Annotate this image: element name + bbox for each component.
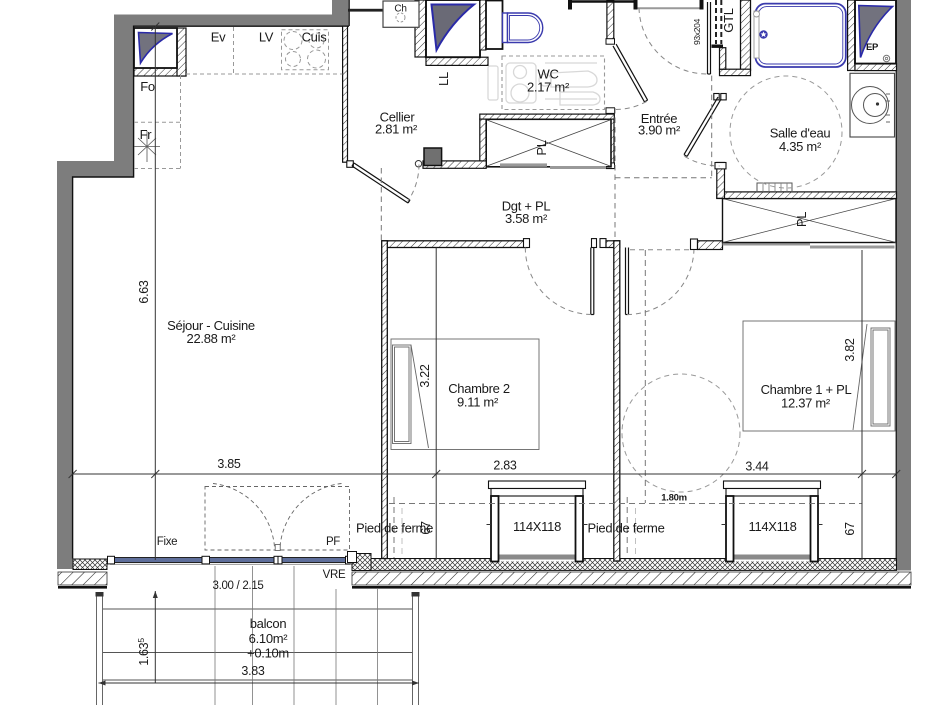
svg-text:3.58 m²: 3.58 m² xyxy=(505,211,548,226)
svg-text:6.10m²: 6.10m² xyxy=(249,631,289,646)
svg-text:3.85: 3.85 xyxy=(217,457,240,471)
svg-text:4.35 m²: 4.35 m² xyxy=(779,139,822,154)
svg-text:Ev: Ev xyxy=(211,30,226,45)
svg-text:3.82: 3.82 xyxy=(843,338,857,361)
svg-text:Pied de ferme: Pied de ferme xyxy=(356,521,433,536)
svg-text:Fo: Fo xyxy=(140,79,155,94)
svg-text:Fr: Fr xyxy=(140,127,153,142)
svg-text:93x204: 93x204 xyxy=(692,18,702,45)
svg-text:12.37 m²: 12.37 m² xyxy=(781,396,831,411)
svg-text:3.44: 3.44 xyxy=(745,460,768,474)
svg-text:GTL: GTL xyxy=(721,8,736,32)
svg-text:114X118: 114X118 xyxy=(513,519,561,534)
svg-text:2.83: 2.83 xyxy=(493,459,516,473)
svg-text:6.63: 6.63 xyxy=(137,280,151,303)
svg-text:3.90 m²: 3.90 m² xyxy=(638,123,681,138)
svg-text:Pied de ferme: Pied de ferme xyxy=(587,521,664,536)
svg-text:Ch: Ch xyxy=(394,4,406,15)
svg-text:3.83: 3.83 xyxy=(241,664,264,678)
svg-text:1.80m: 1.80m xyxy=(661,493,686,504)
svg-text:114X118: 114X118 xyxy=(748,519,796,534)
svg-text:3.22: 3.22 xyxy=(418,364,432,387)
svg-text:9.11 m²: 9.11 m² xyxy=(457,395,499,410)
svg-text:balcon: balcon xyxy=(250,616,287,631)
svg-text:67: 67 xyxy=(843,522,857,536)
svg-text:2.81 m²: 2.81 m² xyxy=(375,122,418,137)
svg-text:22.88 m²: 22.88 m² xyxy=(187,331,237,346)
svg-text:PL: PL xyxy=(534,140,549,155)
svg-text:EP: EP xyxy=(866,42,879,53)
svg-text:2.17 m²: 2.17 m² xyxy=(527,80,570,95)
svg-text:LV: LV xyxy=(259,30,274,45)
svg-text:3.00 / 2.15: 3.00 / 2.15 xyxy=(212,580,263,592)
svg-text:Cuis: Cuis xyxy=(302,30,328,45)
svg-text:+0.10m: +0.10m xyxy=(247,646,289,661)
svg-text:PL: PL xyxy=(794,212,809,227)
svg-text:LL: LL xyxy=(436,72,451,86)
svg-text:Fixe: Fixe xyxy=(157,536,178,548)
svg-text:PF: PF xyxy=(326,536,340,548)
svg-text:VRE: VRE xyxy=(323,569,346,581)
